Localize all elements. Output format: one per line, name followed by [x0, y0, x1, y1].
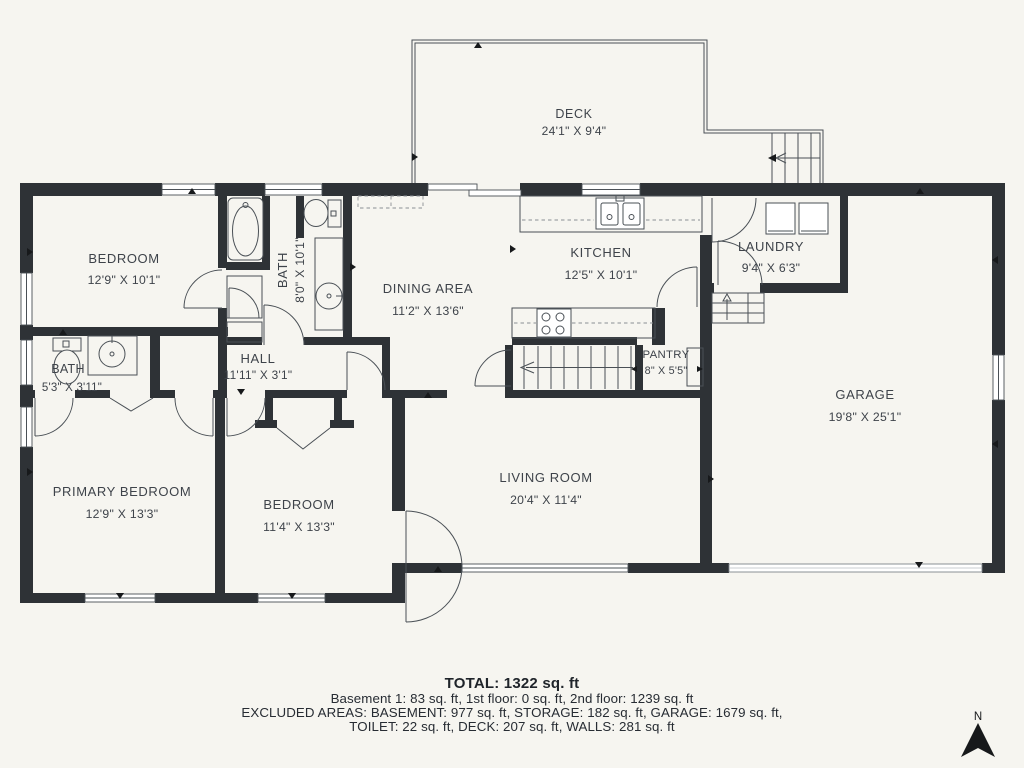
svg-text:LAUNDRY: LAUNDRY [738, 239, 804, 254]
svg-text:BEDROOM: BEDROOM [263, 497, 334, 512]
window [993, 355, 1004, 400]
svg-text:DINING AREA: DINING AREA [383, 281, 473, 296]
svg-text:GARAGE: GARAGE [835, 387, 894, 402]
north-arrow-icon [961, 723, 995, 757]
window [265, 184, 322, 195]
door-closet [229, 288, 259, 318]
bifold-closet-door [277, 428, 330, 449]
svg-text:12'9" X 10'1": 12'9" X 10'1" [88, 273, 161, 287]
toilet-icon [304, 200, 341, 228]
summary-total: TOTAL: 1322 sq. ft [445, 675, 580, 692]
door-laundry [712, 198, 756, 242]
room-label-garage: GARAGE 19'8" X 25'1" [829, 387, 902, 424]
window [582, 184, 640, 195]
garage-door [729, 564, 982, 572]
svg-text:11'11" X 3'1": 11'11" X 3'1" [224, 368, 293, 382]
svg-text:5'3" X 3'11": 5'3" X 3'11" [42, 382, 102, 394]
svg-text:BATH: BATH [51, 362, 85, 376]
room-label-hall: HALL 11'11" X 3'1" [224, 351, 293, 382]
room-label-kitchen: KITCHEN 12'5" X 10'1" [565, 245, 638, 282]
deck-stairs [768, 133, 820, 183]
hall-closet-boxes [227, 276, 262, 342]
svg-text:HALL: HALL [241, 351, 276, 366]
door-kitchen-hall [657, 267, 697, 307]
svg-text:20'4" X 11'4": 20'4" X 11'4" [510, 493, 582, 507]
door-bath-top [264, 305, 304, 345]
svg-text:PRIMARY BEDROOM: PRIMARY BEDROOM [53, 484, 192, 499]
window [462, 564, 628, 572]
door-primary-bedroom [175, 398, 213, 436]
window [21, 407, 32, 447]
room-label-primary-bedroom: PRIMARY BEDROOM 12'9" X 13'3" [53, 484, 192, 521]
kitchen-island [512, 308, 655, 338]
bifold-closet-door [110, 398, 153, 411]
room-label-bath1: BATH 8'0" X 10'1" [275, 237, 307, 303]
svg-text:9'4" X 6'3": 9'4" X 6'3" [742, 261, 801, 275]
svg-text:12'9" X 13'3": 12'9" X 13'3" [86, 507, 159, 521]
room-label-living: LIVING ROOM 20'4" X 11'4" [499, 470, 592, 507]
kitchen-sink-icon [596, 196, 644, 229]
dining-cabinet-dashed [358, 196, 423, 208]
door-bedroom1 [184, 270, 222, 308]
svg-text:LIVING ROOM: LIVING ROOM [499, 470, 592, 485]
sliding-door [428, 184, 521, 196]
north-label: N [974, 711, 982, 723]
dryer-icon [799, 203, 828, 234]
window [21, 340, 32, 385]
summary-line-3: TOILET: 22 sq. ft, DECK: 207 sq. ft, WAL… [349, 719, 675, 734]
summary-line-2: EXCLUDED AREAS: BASEMENT: 977 sq. ft, ST… [241, 705, 782, 720]
bathtub-icon [228, 198, 263, 260]
stairs-basement [521, 346, 633, 389]
north-compass: N [961, 711, 995, 757]
svg-text:24'1" X 9'4": 24'1" X 9'4" [542, 124, 607, 138]
area-summary: TOTAL: 1322 sq. ft Basement 1: 83 sq. ft… [241, 675, 782, 734]
svg-text:19'8" X 25'1": 19'8" X 25'1" [829, 410, 902, 424]
washer-icon [766, 203, 795, 234]
stove-icon [537, 309, 571, 337]
svg-text:BATH: BATH [275, 252, 290, 288]
svg-text:DECK: DECK [555, 107, 592, 121]
bath-vanity-icon [315, 238, 343, 330]
floor-plan: DECK 24'1" X 9'4" BEDROOM 12'9" X 10'1" … [0, 0, 1024, 768]
door-bath2 [35, 398, 73, 436]
window [21, 273, 32, 325]
toilet2-icon [53, 338, 81, 384]
svg-text:8'0" X 10'1": 8'0" X 10'1" [293, 237, 307, 303]
bath2-vanity-icon [88, 336, 137, 375]
svg-text:KITCHEN: KITCHEN [570, 245, 631, 260]
room-label-deck: DECK 24'1" X 9'4" [542, 107, 607, 138]
room-label-pantry: PANTRY 8" X 5'5" [643, 349, 690, 377]
deck-outline [412, 40, 823, 183]
svg-text:8" X 5'5": 8" X 5'5" [645, 365, 688, 377]
room-label-laundry: LAUNDRY 9'4" X 6'3" [738, 239, 804, 275]
door-bedroom2 [227, 398, 265, 436]
summary-line-1: Basement 1: 83 sq. ft, 1st floor: 0 sq. … [331, 691, 694, 706]
room-label-dining: DINING AREA 11'2" X 13'6" [383, 281, 473, 318]
room-label-bedroom2: BEDROOM 11'4" X 13'3" [263, 497, 335, 534]
svg-text:12'5" X 10'1": 12'5" X 10'1" [565, 268, 638, 282]
kitchen-counter [358, 196, 702, 232]
svg-text:BEDROOM: BEDROOM [88, 251, 159, 266]
stairs-garage [712, 293, 764, 323]
room-label-bedroom1: BEDROOM 12'9" X 10'1" [88, 251, 161, 287]
door-hall-living [347, 352, 385, 390]
svg-text:PANTRY: PANTRY [643, 349, 690, 361]
svg-text:11'4" X 13'3": 11'4" X 13'3" [263, 520, 335, 534]
svg-text:11'2" X 13'6": 11'2" X 13'6" [392, 304, 464, 318]
